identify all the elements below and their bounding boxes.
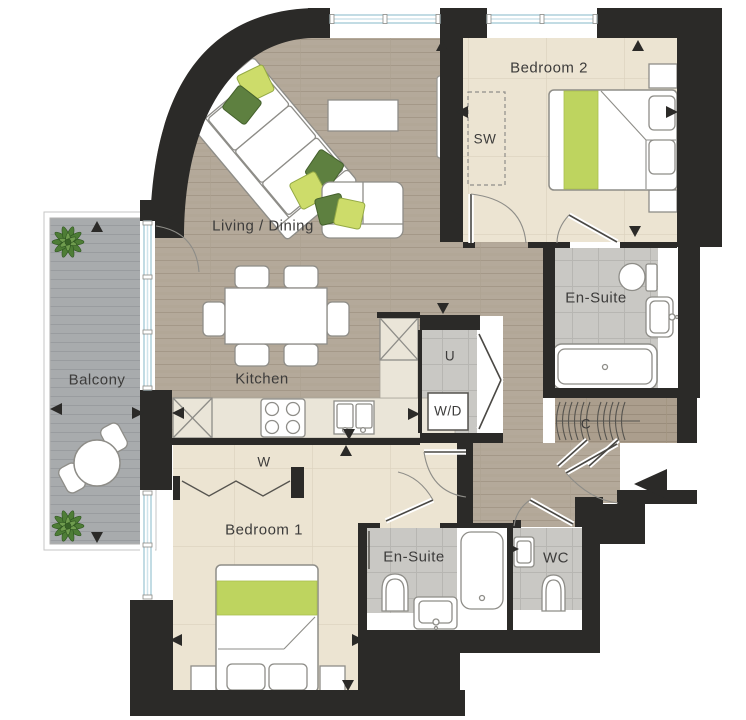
bedside-table [191, 666, 216, 691]
window-icon [140, 490, 155, 600]
room-label-living-dining: Living / Dining [212, 219, 314, 234]
label-wardrobe: W [257, 455, 270, 469]
cushion-lime [333, 198, 365, 230]
window-icon [487, 8, 597, 38]
dining-chair [327, 302, 349, 336]
bed-runner [564, 91, 598, 189]
window-icon [330, 8, 440, 38]
loveseat [314, 182, 403, 238]
floor-plan: Living / Dining Kitchen Balcony Bedroom … [0, 0, 746, 720]
hall-corridor-floor [503, 315, 543, 445]
bed-runner [217, 581, 317, 615]
bedside-table [649, 190, 677, 212]
room-label-kitchen: Kitchen [235, 372, 289, 387]
room-label-wc: WC [543, 551, 569, 566]
bedside-table [320, 666, 345, 691]
toilet-cistern [646, 264, 657, 291]
label-cupboard: C [581, 417, 591, 431]
dining-chair [284, 266, 318, 288]
toilet [619, 264, 645, 291]
pillow [649, 140, 675, 174]
hall-upper-floor [440, 242, 543, 316]
pillow [269, 664, 307, 690]
dining-chair [235, 266, 269, 288]
dining-chair [235, 344, 269, 366]
wc-vanity [513, 610, 582, 630]
kitchen-counter [173, 398, 455, 438]
room-label-ensuite-top: En-Suite [565, 291, 627, 306]
label-utility: U [445, 349, 455, 363]
bedside-table [649, 64, 677, 88]
room-label-balcony: Balcony [69, 373, 126, 388]
floor-plan-drawing [0, 0, 746, 720]
room-label-bedroom2: Bedroom 2 [510, 61, 588, 76]
label-washer-dryer: W/D [434, 404, 462, 418]
pillow [227, 664, 265, 690]
dining-chair [284, 344, 318, 366]
room-label-bedroom1: Bedroom 1 [225, 523, 303, 538]
dining-table [225, 288, 327, 344]
room-label-ensuite-bottom: En-Suite [383, 550, 445, 565]
balcony-table [74, 440, 120, 486]
coffee-table [328, 100, 398, 131]
utility-bifold-door [479, 380, 501, 429]
label-storage-wardrobe: SW [474, 132, 497, 146]
dining-chair [203, 302, 225, 336]
utility-bifold-door [479, 334, 501, 380]
